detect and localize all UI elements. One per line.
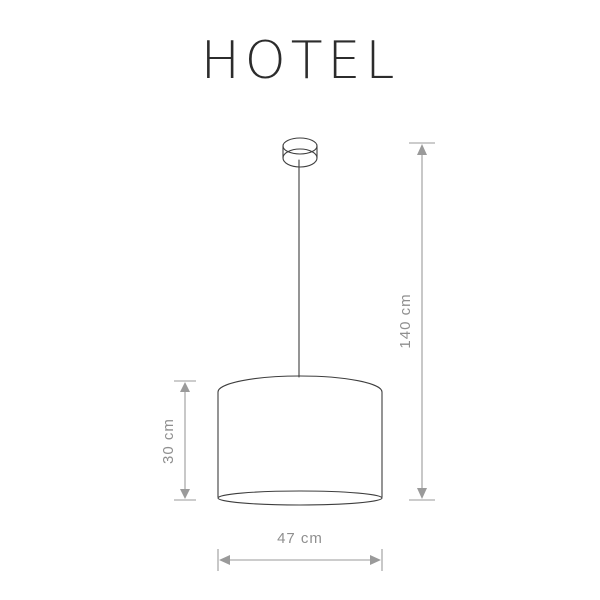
ceiling-canopy	[283, 138, 317, 167]
arrow-up-icon	[417, 144, 427, 155]
overall-height-label: 140 cm	[397, 293, 414, 348]
arrow-up-icon	[180, 382, 190, 392]
shade-diameter-label: 47 cm	[277, 530, 323, 547]
arrow-left-icon	[219, 555, 230, 565]
pendant-lamp-drawing	[218, 138, 382, 505]
overall-height-dimension: 140 cm	[397, 143, 435, 500]
lamp-shade	[218, 376, 382, 505]
canopy-bottom-ellipse	[283, 149, 317, 167]
shade-top-rim	[218, 376, 382, 392]
arrow-right-icon	[370, 555, 381, 565]
arrow-down-icon	[417, 488, 427, 499]
shade-bottom-rim	[218, 491, 382, 505]
shade-height-label: 30 cm	[160, 418, 177, 464]
technical-drawing: 140 cm 30 cm 47 cm	[0, 0, 600, 600]
arrow-down-icon	[180, 489, 190, 499]
shade-diameter-dimension: 47 cm	[218, 530, 382, 571]
shade-height-dimension: 30 cm	[160, 381, 196, 500]
product-spec-sheet: HOTEL	[0, 0, 600, 600]
